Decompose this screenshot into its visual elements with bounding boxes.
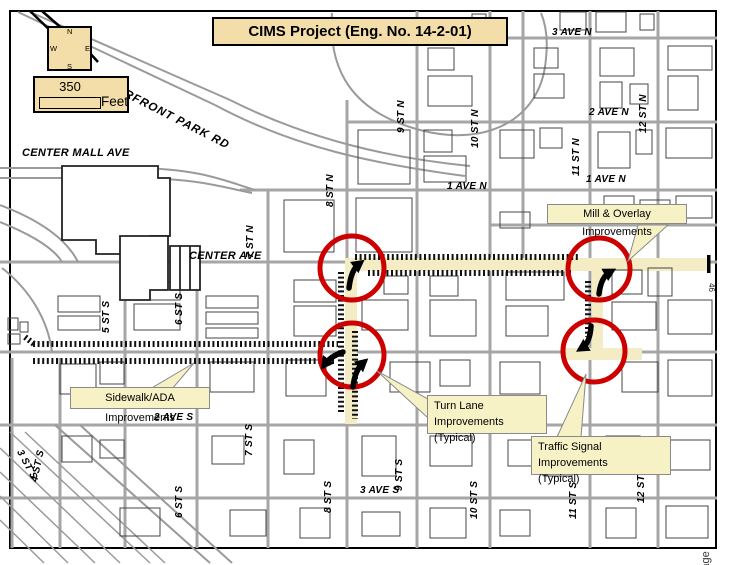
compass-north-label: N [67, 27, 72, 36]
callout-mill-overlay: Mill & Overlay Improvements [547, 204, 687, 224]
compass-west-label: W [50, 44, 57, 53]
map-title: CIMS Project (Eng. No. 14-2-01) [212, 17, 508, 46]
street-label-10-st-s: 10 ST S [469, 481, 480, 519]
street-label-7-st-n: 7 ST N [245, 225, 256, 258]
mall-complex [62, 166, 200, 300]
street-label-2-ave-n: 2 AVE N [589, 107, 629, 118]
page-text: Page [700, 551, 712, 565]
street-label-8-st-n: 8 ST N [325, 174, 336, 207]
street-label-10-st-n: 10 ST N [470, 109, 481, 148]
scale-bar-box: 350 Feet [33, 76, 129, 113]
project-map: RIVERFRONT PARK RD CENTER MALL AVE CENTE… [0, 0, 729, 565]
street-label-6-st-s: 6 ST S [174, 293, 185, 325]
street-label-1-ave-n-east: 1 AVE N [586, 174, 626, 185]
street-label-1-ave-n-west: 1 AVE N [447, 181, 487, 192]
street-label-8-st-s: 8 ST S [323, 481, 334, 513]
route-marker-46: 46 [707, 283, 716, 292]
callout-turn-lane: Turn Lane Improvements (Typical) [427, 395, 547, 434]
scale-distance: 350 [35, 79, 105, 94]
street-label-9-st-n: 9 ST N [396, 100, 407, 133]
callout-traffic-signal: Traffic Signal Improvements (Typical) [531, 436, 671, 475]
callout-traffic-signal-line2: (Typical) [538, 471, 670, 487]
street-label-11-st-n: 11 ST N [571, 138, 582, 176]
street-label-12-st-n: 12 ST N [638, 94, 649, 133]
compass-south-label: S [67, 62, 72, 71]
street-label-9-st-s: 9 ST S [394, 459, 405, 491]
callout-mill-overlay-text: Mill & Overlay Improvements [582, 208, 652, 238]
callout-traffic-signal-line1: Traffic Signal Improvements [538, 439, 670, 471]
scale-unit: Feet [101, 94, 128, 109]
road-end-bracket [707, 255, 711, 273]
callout-sidewalk-ada: Sidewalk/ADA Improvements [70, 387, 210, 409]
compass-east-label: E [85, 44, 90, 53]
street-label-6-st-s-lower: 6 ST S [174, 486, 185, 518]
callout-sidewalk-ada-text: Sidewalk/ADA Improvements [105, 392, 175, 424]
callout-turn-lane-line1: Turn Lane Improvements [434, 398, 546, 430]
compass-box: N S W E [47, 26, 92, 71]
street-label-center-mall-ave: CENTER MALL AVE [22, 147, 130, 159]
street-label-7-st-s: 7 ST S [244, 424, 255, 456]
street-label-5-st-s: 5 ST S [101, 301, 112, 333]
street-label-3-ave-n: 3 AVE N [552, 27, 592, 38]
street-label-11-st-s: 11 ST S [568, 482, 579, 520]
callout-turn-lane-line2: (Typical) [434, 430, 546, 446]
scale-bar [39, 97, 101, 109]
